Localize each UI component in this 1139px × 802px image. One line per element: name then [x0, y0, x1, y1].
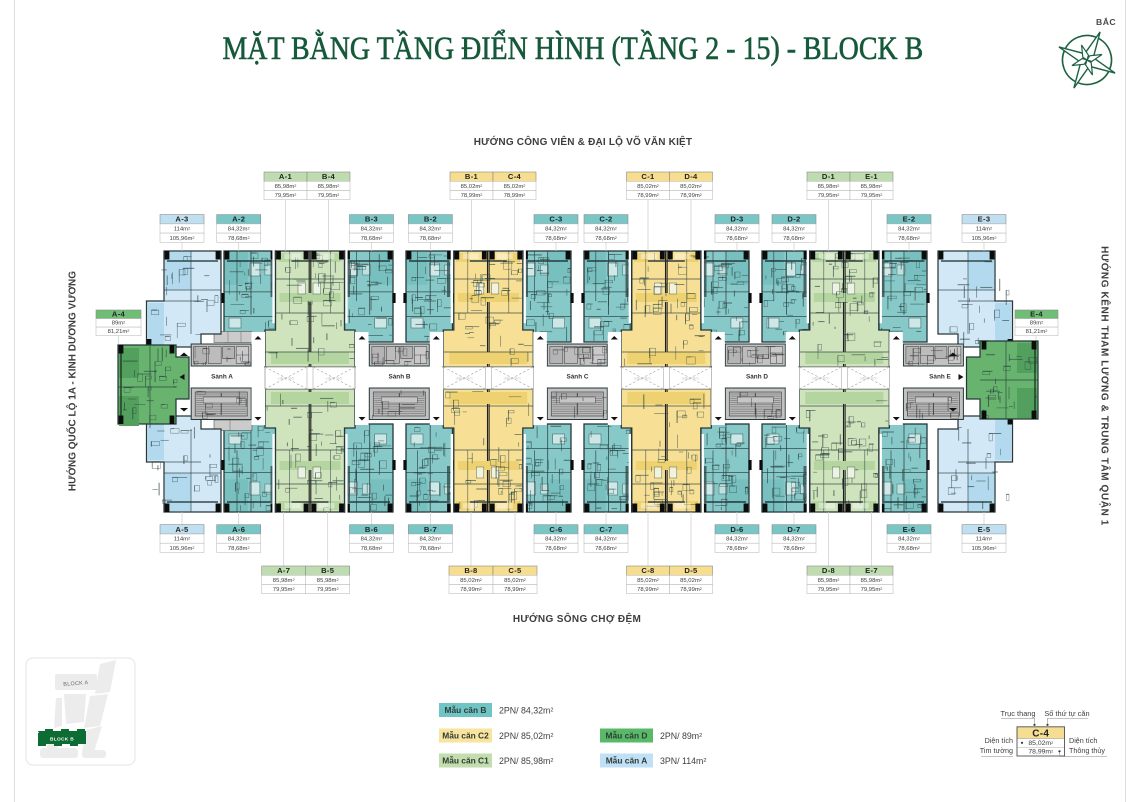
svg-text:78,68m2: 78,68m2 — [783, 236, 805, 242]
svg-text:105,96m2: 105,96m2 — [971, 546, 996, 552]
svg-text:B-1: B-1 — [465, 172, 479, 181]
svg-text:C-4: C-4 — [1032, 728, 1049, 739]
svg-text:114m2: 114m2 — [976, 537, 992, 543]
svg-text:GIẾNG TRỜI: GIẾNG TRỜI — [812, 376, 829, 381]
svg-text:Sảnh D: Sảnh D — [746, 374, 768, 381]
svg-text:84,32m2: 84,32m2 — [228, 537, 250, 543]
svg-text:78,99m2: 78,99m2 — [460, 587, 482, 593]
svg-text:114m2: 114m2 — [174, 537, 190, 543]
svg-text:84,32m2: 84,32m2 — [783, 537, 805, 543]
svg-text:114m2: 114m2 — [976, 226, 992, 232]
svg-text:D-1: D-1 — [822, 172, 836, 181]
svg-text:C-2: C-2 — [599, 215, 612, 224]
svg-text:C-5: C-5 — [508, 566, 522, 575]
svg-text:B-3: B-3 — [365, 215, 378, 224]
svg-text:D-5: D-5 — [684, 566, 698, 575]
svg-text:C-6: C-6 — [549, 525, 562, 534]
svg-text:E-1: E-1 — [865, 172, 878, 181]
svg-text:78,68m2: 78,68m2 — [361, 546, 383, 552]
svg-text:2PN/ 84,32m2: 2PN/ 84,32m2 — [499, 705, 553, 715]
svg-text:105,96m2: 105,96m2 — [169, 546, 194, 552]
svg-text:A-2: A-2 — [232, 215, 245, 224]
svg-text:84,32m2: 84,32m2 — [595, 226, 617, 232]
svg-text:78,68m2: 78,68m2 — [898, 236, 920, 242]
svg-text:Mẫu căn C2: Mẫu căn C2 — [442, 731, 489, 741]
svg-text:A-7: A-7 — [277, 566, 290, 575]
svg-text:78,68m2: 78,68m2 — [595, 236, 617, 242]
svg-text:84,32m2: 84,32m2 — [726, 537, 748, 543]
svg-text:GIẾNG TRỜI: GIẾNG TRỜI — [682, 376, 699, 381]
svg-text:79,95m2: 79,95m2 — [861, 587, 883, 593]
svg-text:GIẾNG TRỜI: GIẾNG TRỜI — [326, 376, 343, 381]
svg-text:84,32m2: 84,32m2 — [898, 537, 920, 543]
svg-text:79,95m2: 79,95m2 — [275, 193, 297, 199]
svg-text:85,98m2: 85,98m2 — [275, 184, 297, 190]
svg-text:78,68m2: 78,68m2 — [420, 236, 442, 242]
svg-text:C-1: C-1 — [641, 172, 655, 181]
svg-text:85,02m2: 85,02m2 — [637, 184, 659, 190]
svg-text:85,02m2: 85,02m2 — [460, 578, 482, 584]
svg-text:85,98m2: 85,98m2 — [318, 184, 340, 190]
svg-text:GIẾNG TRỜI: GIẾNG TRỜI — [278, 376, 295, 381]
svg-text:79,95m2: 79,95m2 — [318, 193, 340, 199]
svg-text:78,99m2: 78,99m2 — [461, 193, 483, 199]
svg-text:84,32m2: 84,32m2 — [726, 226, 748, 232]
svg-text:BLOCK B: BLOCK B — [50, 737, 74, 743]
svg-text:84,32m2: 84,32m2 — [595, 537, 617, 543]
svg-text:C-8: C-8 — [641, 566, 654, 575]
svg-text:78,68m2: 78,68m2 — [228, 236, 250, 242]
svg-text:78,68m2: 78,68m2 — [545, 236, 567, 242]
svg-text:78,68m2: 78,68m2 — [898, 546, 920, 552]
svg-text:78,99m2: 78,99m2 — [637, 193, 659, 199]
svg-text:GIẾNG TRỜI: GIẾNG TRỜI — [456, 376, 473, 381]
svg-text:85,02m2: 85,02m2 — [637, 578, 659, 584]
svg-text:85,98m2: 85,98m2 — [861, 578, 883, 584]
svg-text:Thông thủy: Thông thủy — [1069, 746, 1105, 755]
svg-text:B-6: B-6 — [365, 525, 378, 534]
svg-text:78,68m2: 78,68m2 — [420, 546, 442, 552]
svg-text:78,68m2: 78,68m2 — [595, 546, 617, 552]
svg-text:78,99m2: 78,99m2 — [680, 193, 702, 199]
svg-text:E-2: E-2 — [903, 215, 916, 224]
svg-text:81,21m2: 81,21m2 — [1026, 329, 1048, 335]
svg-text:79,95m2: 79,95m2 — [317, 587, 339, 593]
svg-text:D-3: D-3 — [730, 215, 743, 224]
svg-text:84,32m2: 84,32m2 — [898, 226, 920, 232]
svg-text:Mẫu căn A: Mẫu căn A — [606, 756, 648, 766]
svg-text:Diện tích: Diện tích — [985, 736, 1013, 745]
svg-text:114m2: 114m2 — [174, 226, 190, 232]
svg-text:B-4: B-4 — [322, 172, 336, 181]
svg-text:A-1: A-1 — [279, 172, 293, 181]
svg-text:85,98m2: 85,98m2 — [818, 184, 840, 190]
svg-text:Mẫu căn C1: Mẫu căn C1 — [442, 756, 489, 766]
svg-text:79,95m2: 79,95m2 — [818, 193, 840, 199]
svg-text:A-4: A-4 — [112, 309, 126, 318]
svg-text:2PN/ 85,98m2: 2PN/ 85,98m2 — [499, 756, 553, 766]
svg-text:E-3: E-3 — [978, 215, 991, 224]
svg-text:78,68m2: 78,68m2 — [361, 236, 383, 242]
svg-text:78,68m2: 78,68m2 — [545, 546, 567, 552]
svg-text:85,02m2: 85,02m2 — [680, 578, 702, 584]
svg-text:D-6: D-6 — [730, 525, 743, 534]
svg-text:A-6: A-6 — [232, 525, 245, 534]
svg-text:B-5: B-5 — [321, 566, 335, 575]
svg-text:D-4: D-4 — [684, 172, 698, 181]
svg-text:105,96m2: 105,96m2 — [169, 236, 194, 242]
svg-text:78,99m2: 78,99m2 — [504, 587, 526, 593]
svg-text:78,68m2: 78,68m2 — [228, 546, 250, 552]
svg-text:81,21m2: 81,21m2 — [108, 329, 130, 335]
svg-text:84,32m2: 84,32m2 — [420, 226, 442, 232]
svg-text:85,02m2: 85,02m2 — [461, 184, 483, 190]
svg-text:BẮC: BẮC — [1096, 17, 1116, 27]
svg-text:C-3: C-3 — [549, 215, 562, 224]
svg-text:85,98m2: 85,98m2 — [317, 578, 339, 584]
svg-text:Mẫu căn B: Mẫu căn B — [445, 705, 487, 715]
svg-text:B-2: B-2 — [424, 215, 437, 224]
svg-text:2PN/ 85,02m2: 2PN/ 85,02m2 — [499, 731, 553, 741]
svg-text:85,02m2: 85,02m2 — [680, 184, 702, 190]
svg-text:85,98m2: 85,98m2 — [861, 184, 883, 190]
svg-text:E-7: E-7 — [865, 566, 878, 575]
svg-text:85,02m2: 85,02m2 — [504, 578, 526, 584]
svg-text:GIẾNG TRỜI: GIẾNG TRỜI — [634, 376, 651, 381]
svg-text:84,32m2: 84,32m2 — [361, 537, 383, 543]
svg-text:E-5: E-5 — [978, 525, 991, 534]
svg-text:105,96m2: 105,96m2 — [971, 236, 996, 242]
svg-text:84,32m2: 84,32m2 — [228, 226, 250, 232]
svg-text:C-7: C-7 — [599, 525, 612, 534]
svg-text:GIẾNG TRỜI: GIẾNG TRỜI — [504, 376, 521, 381]
svg-text:Sảnh C: Sảnh C — [566, 374, 588, 381]
svg-text:Tim tường: Tim tường — [980, 746, 1013, 755]
svg-text:E-6: E-6 — [903, 525, 916, 534]
svg-text:78,99m2: 78,99m2 — [1028, 749, 1053, 756]
svg-text:84,32m2: 84,32m2 — [545, 226, 567, 232]
svg-text:A-3: A-3 — [175, 215, 188, 224]
svg-text:D-7: D-7 — [787, 525, 800, 534]
svg-text:3PN/ 114m2: 3PN/ 114m2 — [660, 756, 706, 766]
svg-text:84,32m2: 84,32m2 — [545, 537, 567, 543]
svg-text:Số thứ tự căn: Số thứ tự căn — [1044, 709, 1089, 718]
svg-text:A-5: A-5 — [175, 525, 189, 534]
svg-text:78,68m2: 78,68m2 — [726, 236, 748, 242]
svg-text:B-7: B-7 — [424, 525, 437, 534]
svg-text:84,32m2: 84,32m2 — [783, 226, 805, 232]
svg-text:84,32m2: 84,32m2 — [420, 537, 442, 543]
svg-text:Sảnh B: Sảnh B — [388, 374, 410, 381]
svg-text:85,02m2: 85,02m2 — [504, 184, 526, 190]
svg-text:D-8: D-8 — [822, 566, 835, 575]
svg-text:Diện tích: Diện tích — [1069, 736, 1097, 745]
svg-text:Sảnh E: Sảnh E — [929, 374, 951, 381]
svg-text:78,68m2: 78,68m2 — [783, 546, 805, 552]
svg-text:78,99m2: 78,99m2 — [680, 587, 702, 593]
svg-text:85,98m2: 85,98m2 — [273, 578, 295, 584]
svg-text:B-8: B-8 — [464, 566, 477, 575]
svg-text:Mẫu căn D: Mẫu căn D — [606, 731, 648, 741]
svg-text:GIẾNG TRỜI: GIẾNG TRỜI — [860, 376, 877, 381]
svg-text:79,95m2: 79,95m2 — [273, 587, 295, 593]
svg-text:78,99m2: 78,99m2 — [637, 587, 659, 593]
svg-text:E-4: E-4 — [1030, 309, 1043, 318]
svg-text:Sảnh A: Sảnh A — [211, 374, 233, 381]
svg-text:78,99m2: 78,99m2 — [504, 193, 526, 199]
svg-text:79,95m2: 79,95m2 — [818, 587, 840, 593]
svg-text:84,32m2: 84,32m2 — [361, 226, 383, 232]
svg-text:85,02m2: 85,02m2 — [1028, 740, 1053, 747]
svg-text:79,95m2: 79,95m2 — [861, 193, 883, 199]
svg-text:85,98m2: 85,98m2 — [818, 578, 840, 584]
svg-text:C-4: C-4 — [508, 172, 522, 181]
svg-text:78,68m2: 78,68m2 — [726, 546, 748, 552]
svg-text:Trục thang: Trục thang — [1000, 709, 1035, 718]
svg-text:D-2: D-2 — [787, 215, 800, 224]
svg-text:2PN/ 89m2: 2PN/ 89m2 — [660, 731, 702, 741]
